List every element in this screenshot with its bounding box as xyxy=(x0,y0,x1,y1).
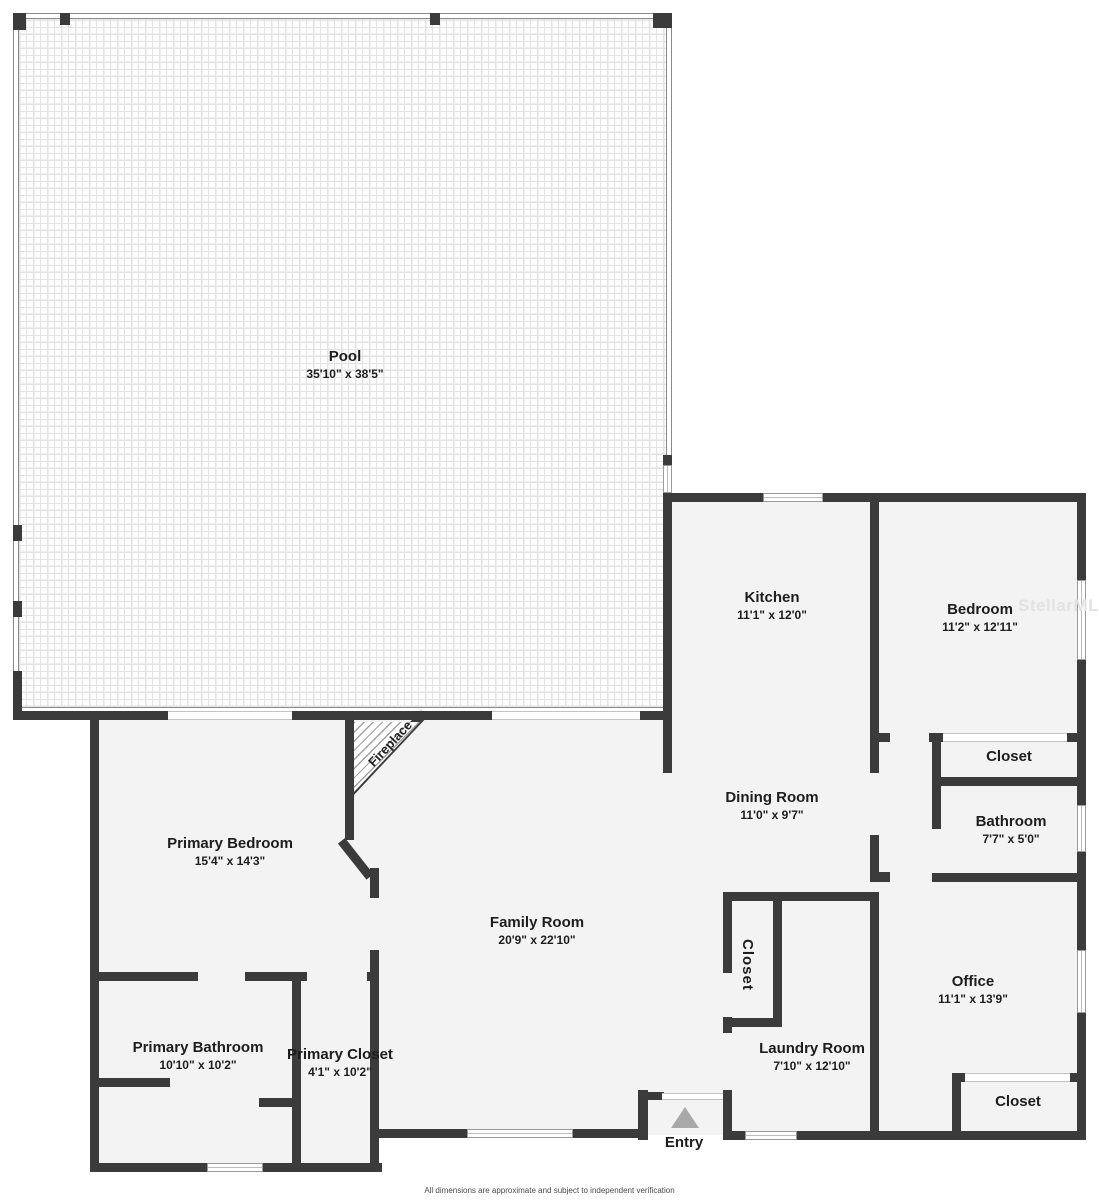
disclaimer-text: All dimensions are approximate and subje… xyxy=(0,1186,1099,1195)
room-dims: 20'9" x 22'10" xyxy=(457,932,617,949)
enclosure-post xyxy=(430,13,440,25)
wall-hall-closet-right xyxy=(773,901,782,1027)
wall-primary-bedroom-right-a xyxy=(370,868,379,898)
wall-laundry-office-divider xyxy=(870,892,879,1140)
window-laundry xyxy=(745,1131,797,1140)
wall-dining-stub xyxy=(870,835,879,882)
room-name: Dining Room xyxy=(692,789,852,807)
room-label-primary-bathroom: Primary Bathroom 10'10" x 10'2" xyxy=(88,1039,308,1074)
room-label-office: Office 11'1" x 13'9" xyxy=(893,973,1053,1008)
room-name: Primary Bathroom xyxy=(88,1039,308,1057)
window-primary-bathroom xyxy=(207,1163,263,1172)
wall-hall-right-a xyxy=(723,901,732,973)
room-dims: 10'10" x 10'2" xyxy=(88,1057,308,1074)
room-name: Family Room xyxy=(457,914,617,932)
sliding-door-family-room xyxy=(492,711,640,720)
wall-fireplace-side xyxy=(345,713,354,840)
wall-laundry-top xyxy=(723,892,879,901)
room-name: Primary Closet xyxy=(284,1046,396,1064)
room-label-bedroom-closet: Closet xyxy=(929,748,1089,766)
wall-office-top-stub xyxy=(879,872,890,882)
room-dims: 11'1" x 12'0" xyxy=(692,607,852,624)
room-name: Kitchen xyxy=(692,589,852,607)
room-name: Closet xyxy=(938,1093,1098,1111)
room-label-office-closet: Closet xyxy=(938,1093,1098,1111)
room-name: Laundry Room xyxy=(712,1040,912,1058)
room-dims: 35'10" x 38'5" xyxy=(265,366,425,383)
watermark: StellarMLS xyxy=(1018,596,1099,616)
wall-kitchen-bedroom-divider xyxy=(870,497,879,773)
room-name: Pool xyxy=(265,348,425,366)
wall-house-left xyxy=(90,713,99,1172)
window-bedroom xyxy=(1077,580,1086,660)
room-label-primary-bedroom: Primary Bedroom 15'4" x 14'3" xyxy=(130,835,330,870)
door-opening xyxy=(198,972,245,981)
wall-kitchen-left xyxy=(663,502,672,773)
entry-door xyxy=(662,1093,723,1100)
room-label-laundry-room: Laundry Room 7'10" x 12'10" xyxy=(712,1040,912,1075)
room-dims: 15'4" x 14'3" xyxy=(130,853,330,870)
entry-arrow-icon xyxy=(671,1107,699,1128)
room-dims: 11'2" x 12'11" xyxy=(900,619,1060,636)
window xyxy=(663,465,672,493)
room-dims: 7'10" x 12'10" xyxy=(712,1058,912,1075)
room-name: Entry xyxy=(624,1134,744,1152)
enclosure-post xyxy=(13,525,22,541)
room-label-pool: Pool 35'10" x 38'5" xyxy=(265,348,425,383)
room-name: Primary Bedroom xyxy=(130,835,330,853)
room-label-family-room: Family Room 20'9" x 22'10" xyxy=(457,914,617,949)
door-opening xyxy=(890,733,929,742)
enclosure-post xyxy=(13,601,22,617)
enclosure-post xyxy=(13,13,26,30)
room-label-primary-closet: Primary Closet 4'1" x 10'2" xyxy=(284,1046,396,1081)
room-name: Bathroom xyxy=(931,813,1091,831)
room-dims: 7'7" x 5'0" xyxy=(931,831,1091,848)
room-name: Office xyxy=(893,973,1053,991)
wall-bathroom-top xyxy=(932,777,1086,786)
room-dims: 11'1" x 13'9" xyxy=(893,991,1053,1008)
closet-sliding-doors xyxy=(965,1073,1070,1082)
enclosure-post xyxy=(653,13,672,28)
wall-hall-closet-bottom xyxy=(723,1018,782,1027)
wall-bathroom-bottom xyxy=(932,873,1086,882)
room-name: Closet xyxy=(929,748,1089,766)
wall-office-closet-left xyxy=(952,1082,961,1140)
wall-primary-bathroom-stub xyxy=(259,1098,301,1107)
wall-primary-bathroom-stub xyxy=(90,1078,170,1087)
room-label-kitchen: Kitchen 11'1" x 12'0" xyxy=(692,589,852,624)
wall-entry-right xyxy=(723,1090,732,1140)
enclosure-post xyxy=(663,455,672,465)
sliding-door-primary-bedroom xyxy=(168,711,292,720)
room-label-bathroom: Bathroom 7'7" x 5'0" xyxy=(931,813,1091,848)
door-opening xyxy=(307,972,367,981)
window-family-room xyxy=(467,1129,573,1138)
room-dims: 11'0" x 9'7" xyxy=(692,807,852,824)
window-kitchen xyxy=(763,493,823,502)
room-label-entry: Entry xyxy=(624,1134,744,1152)
floor-plan: Fireplace Pool 35'10" x 38'5" Kitchen 11… xyxy=(0,0,1099,1200)
floor-left-wing xyxy=(99,713,374,1163)
room-dims: 4'1" x 10'2" xyxy=(284,1064,396,1081)
closet-sliding-doors xyxy=(943,733,1067,742)
wall-entry-stub xyxy=(638,1092,664,1100)
enclosure-post xyxy=(60,13,70,25)
window-office xyxy=(1077,950,1086,1013)
room-label-hall-closet: Closet xyxy=(739,915,756,1015)
room-label-dining-room: Dining Room 11'0" x 9'7" xyxy=(692,789,852,824)
